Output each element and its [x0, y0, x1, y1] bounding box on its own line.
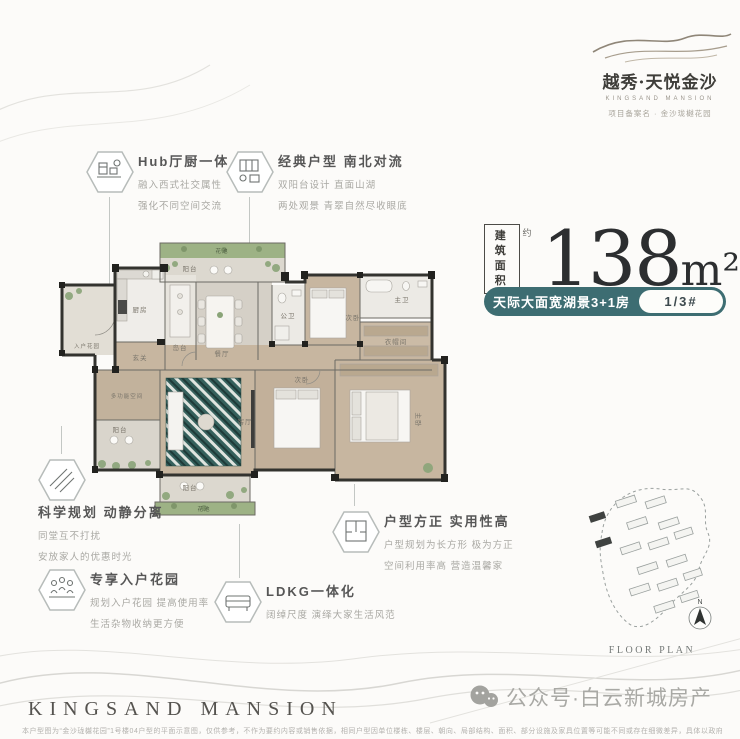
area-value: 138m² — [542, 227, 740, 292]
room-label-flowerbed-bottom: 花池 — [197, 505, 210, 513]
area-approx: 约 — [523, 226, 532, 239]
callout-hub-line1: 融入西式社交属性 — [138, 177, 229, 191]
unit-type-label: 天际大面宽湖景3+1房 — [484, 292, 639, 311]
room-label-master-bath: 主卫 — [395, 295, 410, 304]
callout-classic-title: 经典户型 南北对流 — [278, 151, 408, 170]
callout-hub: Hub厅厨一体 融入西式社交属性 强化不同空间交流 — [138, 151, 229, 212]
family-garden-icon — [36, 566, 88, 614]
callout-hub-title: Hub厅厨一体 — [138, 151, 229, 170]
room-label-entry-garden: 入户花园 — [74, 342, 100, 350]
logo-title: 越秀·天悦金沙 — [575, 68, 740, 93]
brand-logo: 越秀·天悦金沙 KINGSAND MANSION 项目备案名 · 金沙珑樾花园 — [575, 22, 740, 119]
logo-subtitle-en: KINGSAND MANSION — [575, 96, 740, 102]
unit-number-badge: 1/3# — [639, 290, 723, 313]
room-label-balcony-top: 阳台 — [183, 264, 198, 273]
callout-sci-line2: 安放家人的优惠时光 — [38, 549, 164, 563]
callout-classic-line2: 两处观景 青翠自然尽收眼底 — [278, 198, 408, 212]
callout-ldkg: LDKG一体化 阔绰尺度 演绎大家生活风范 — [266, 581, 396, 621]
room-label-flowerbed-top: 花池 — [215, 247, 228, 255]
watermark-text: 公众号·白云新城房产 — [506, 682, 712, 712]
room-label-balcony-left: 阳台 — [113, 425, 128, 434]
callout-square-line2: 空间利用率高 营造温馨家 — [384, 558, 514, 572]
leader-line-sci — [61, 426, 62, 454]
room-label-bedroom-top: 次卧 — [346, 313, 361, 322]
callout-sci-title: 科学规划 动静分离 — [38, 502, 164, 521]
wechat-icon — [468, 683, 500, 711]
room-label-bedroom-bottom: 次卧 — [295, 375, 310, 384]
callout-garden-line1: 规划入户花园 提高使用率 — [90, 595, 209, 609]
room-label-balcony-bottom: 阳台 — [183, 483, 198, 492]
compass-icon: N — [689, 599, 711, 629]
logo-tagline: 项目备案名 · 金沙珑樾花园 — [575, 108, 740, 119]
area-figure: 建筑 面积 约 138m² — [484, 224, 740, 294]
area-badge-line1: 建筑 — [490, 229, 514, 259]
callout-sci-line1: 同堂互不打扰 — [38, 528, 164, 542]
poster: 越秀·天悦金沙 KINGSAND MANSION 项目备案名 · 金沙珑樾花园 … — [0, 0, 740, 739]
callout-hub-line2: 强化不同空间交流 — [138, 198, 229, 212]
callout-square: 户型方正 实用性高 户型规划为长方形 极为方正 空间利用率高 营造温馨家 — [384, 511, 514, 572]
room-label-foyer: 玄关 — [133, 353, 148, 362]
callout-square-line1: 户型规划为长方形 极为方正 — [384, 537, 514, 551]
room-label-kitchen: 厨房 — [133, 305, 148, 314]
callout-sci: 科学规划 动静分离 同堂互不打扰 安放家人的优惠时光 — [38, 502, 164, 563]
room-label-dining: 餐厅 — [215, 349, 230, 358]
watermark: 公众号·白云新城房产 — [468, 682, 712, 712]
mountain-wave-icon — [585, 22, 735, 66]
room-label-living: 客厅 — [238, 417, 253, 426]
kitchen-hub-icon — [84, 148, 136, 196]
callout-classic-line1: 双阳台设计 直面山湖 — [278, 177, 408, 191]
mini-floorplan-icon — [330, 508, 382, 556]
leader-line-square — [354, 484, 355, 506]
area-badge: 建筑 面积 — [484, 224, 520, 294]
sofa-icon — [212, 578, 264, 626]
zoning-lines-icon — [36, 456, 88, 504]
room-label-closet: 衣帽间 — [385, 337, 408, 346]
unit-type-pill: 天际大面宽湖景3+1房 1/3# — [484, 287, 726, 316]
cabinet-plants-icon — [224, 148, 276, 196]
compass-north-label: N — [697, 599, 702, 606]
room-label-master-bedroom: 主卧 — [414, 413, 423, 428]
callout-ldkg-line1: 阔绰尺度 演绎大家生活风范 — [266, 607, 396, 621]
callout-ldkg-title: LDKG一体化 — [266, 581, 396, 600]
callout-square-title: 户型方正 实用性高 — [384, 511, 514, 530]
footer-brand: KINGSAND MANSION — [28, 698, 343, 721]
leader-line-ldkg — [239, 524, 240, 578]
room-label-guest-bath: 公卫 — [281, 312, 296, 320]
callout-garden-title: 专享入户花园 — [90, 569, 209, 588]
site-buildings — [585, 481, 713, 624]
room-label-multifunction: 多功能空间 — [111, 392, 144, 400]
room-label-island: 岛台 — [173, 343, 188, 352]
callout-garden: 专享入户花园 规划入户花园 提高使用率 生活杂物收纳更方便 — [90, 569, 209, 630]
floor-plan-drawing: 花池 阳台 厨房 岛台 餐厅 玄关 入户花园 多功能空间 阳台 客厅 阳台 花池… — [54, 240, 454, 520]
callout-classic: 经典户型 南北对流 双阳台设计 直面山湖 两处观景 青翠自然尽收眼底 — [278, 151, 408, 212]
contour-lines-top-icon — [0, 10, 260, 160]
disclaimer-text: 本户型图为“金沙珑樾花园”1号楼04户型的平面示意图，仅供参考，不作为要约内容或… — [22, 726, 722, 736]
area-badge-line2: 面积 — [490, 259, 514, 289]
